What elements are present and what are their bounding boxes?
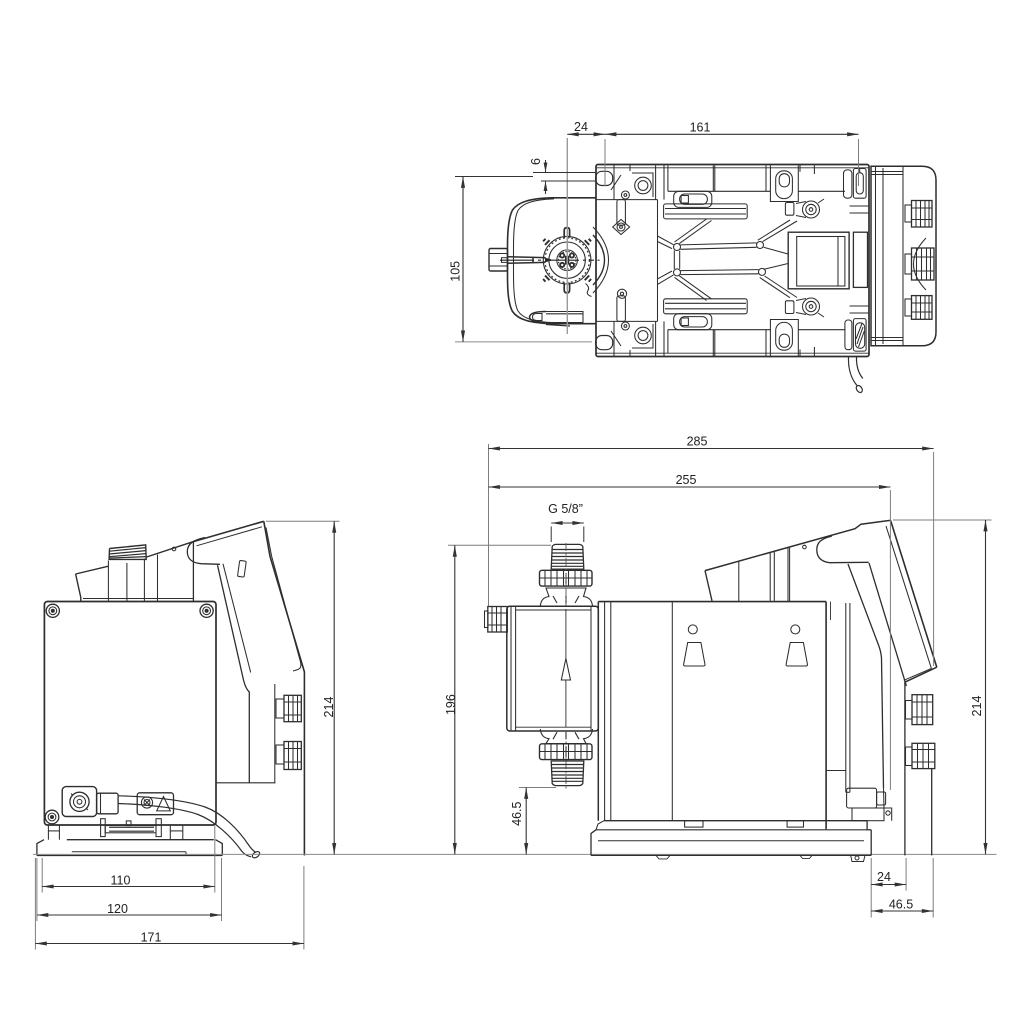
svg-text:171: 171 xyxy=(141,931,162,945)
svg-text:24: 24 xyxy=(877,870,891,884)
svg-text:46.5: 46.5 xyxy=(510,801,524,825)
svg-text:46.5: 46.5 xyxy=(889,898,913,912)
svg-text:196: 196 xyxy=(444,694,458,715)
svg-text:214: 214 xyxy=(322,697,336,718)
svg-text:161: 161 xyxy=(690,121,711,135)
svg-text:105: 105 xyxy=(448,261,462,282)
svg-text:214: 214 xyxy=(970,696,984,717)
svg-text:G 5/8”: G 5/8” xyxy=(548,502,583,516)
svg-text:120: 120 xyxy=(107,902,128,916)
svg-text:6: 6 xyxy=(529,158,543,165)
svg-text:24: 24 xyxy=(574,120,588,134)
svg-text:110: 110 xyxy=(111,873,131,887)
svg-text:285: 285 xyxy=(687,435,708,449)
svg-text:255: 255 xyxy=(676,473,697,487)
